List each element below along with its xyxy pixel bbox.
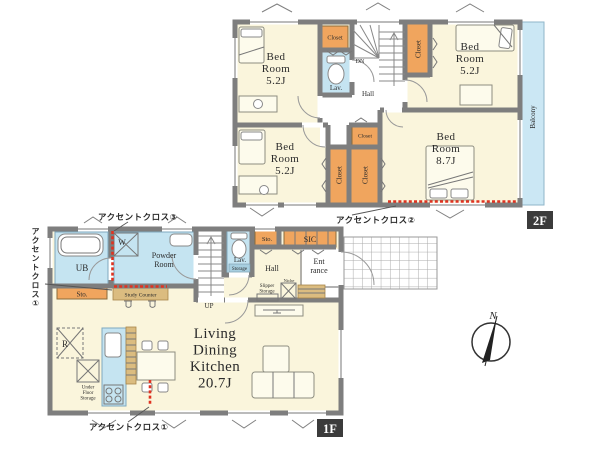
desk-nw bbox=[239, 96, 277, 112]
sic-label: SIC bbox=[304, 235, 316, 244]
closet-mid-label: Closet bbox=[358, 134, 373, 140]
accent-note-1: アクセントクロス① bbox=[89, 422, 168, 433]
bed-sw bbox=[239, 130, 265, 164]
powder-sink bbox=[170, 234, 192, 246]
floor-plan-drawing: BedRoom5.2J BedRoom5.2J BedRoom5.2J BedR… bbox=[0, 0, 600, 450]
hall-1f-label: Hall bbox=[265, 264, 280, 273]
lav-storage-label: Storage bbox=[232, 267, 248, 272]
floor1-plan: UB W PowderRoom Sto. Study Counter Lav. … bbox=[45, 212, 437, 437]
desk-sw bbox=[239, 176, 277, 195]
ub-label: UB bbox=[76, 263, 89, 273]
toilet-2f bbox=[327, 56, 345, 84]
entrance-porch-tiles bbox=[344, 237, 437, 289]
storage-top-label: Sto. bbox=[262, 236, 273, 243]
bed-nw bbox=[239, 27, 264, 63]
kitchen-sink bbox=[105, 333, 121, 357]
floor2-hall-floor2 bbox=[380, 88, 405, 110]
compass: N bbox=[472, 310, 510, 366]
balcony-label: Balcony bbox=[529, 105, 537, 129]
stairs-dn-label: DN bbox=[356, 59, 365, 65]
desk-ne bbox=[460, 85, 492, 105]
compass-north-label: N bbox=[488, 310, 497, 322]
slipper-storage-label: SlipperStorage bbox=[259, 284, 275, 295]
lav-1f-label: Lav. bbox=[234, 256, 246, 264]
accent-note-3: アクセントクロス③ bbox=[98, 212, 177, 223]
entrance-bench bbox=[298, 285, 325, 298]
sofa bbox=[252, 372, 314, 398]
lav-2f-label: Lav. bbox=[330, 84, 342, 92]
niche-label: Niche bbox=[284, 278, 295, 283]
accent-note-2: アクセントクロス② bbox=[336, 215, 415, 226]
coffee-table bbox=[263, 346, 289, 372]
washer-label: W bbox=[118, 238, 126, 247]
powder-room-label: PowderRoom bbox=[152, 251, 177, 269]
hall-2f-label: Hall bbox=[362, 90, 374, 98]
floor2-plan: BedRoom5.2J BedRoom5.2J BedRoom5.2J BedR… bbox=[233, 3, 554, 229]
closet-nw-label: Closet bbox=[327, 36, 343, 42]
closet-ne-label: Closet bbox=[415, 40, 423, 58]
toilet-1f bbox=[231, 233, 247, 258]
refrigerator-label: R bbox=[62, 339, 68, 349]
storage-left-label: Sto. bbox=[76, 291, 87, 299]
floor2-badge: 2F bbox=[533, 214, 547, 228]
study-counter-label: Study Counter bbox=[125, 293, 157, 299]
closet-v1-label: Closet bbox=[336, 166, 344, 184]
closet-v2-label: Closet bbox=[362, 166, 370, 184]
accent-note-1-left: アクセントクロス① bbox=[28, 227, 43, 319]
bathtub bbox=[58, 234, 103, 256]
floor-plan-page: BedRoom5.2J BedRoom5.2J BedRoom5.2J BedR… bbox=[0, 0, 600, 450]
tv-board bbox=[255, 305, 303, 316]
stairs-up-label: UP bbox=[205, 302, 214, 310]
floor1-badge: 1F bbox=[323, 422, 337, 436]
